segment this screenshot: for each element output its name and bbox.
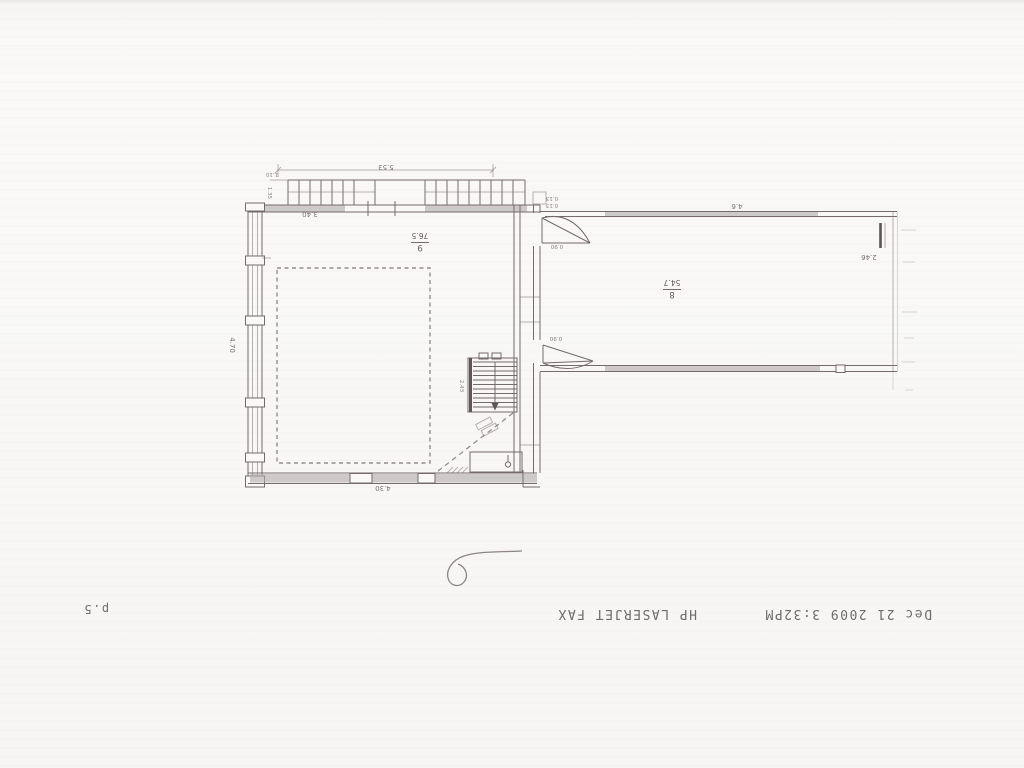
balcony-railing [270,180,525,205]
room9-left-window-wall: 4.70 [228,203,271,487]
sink-fixture [447,452,522,473]
dim-wall-thickness-a: 0.13 [545,195,558,201]
fax-device-name: HP LASERJET FAX [552,606,702,621]
door-swing-bottom: 0.90 [543,335,593,369]
room8-area: 54.7 [663,278,680,287]
dim-room8-top: 4.6 [731,202,743,210]
room8-label: 8 54.7 [663,278,681,299]
room9-label: 9 76.5 [411,231,429,252]
dim-left-wall: 4.70 [228,337,236,353]
scan-artifacts [901,230,917,390]
dim-balcony-d1: 1.10 [265,171,278,177]
room8-window [881,223,886,248]
dim-balcony-width: 5.53 [378,163,394,171]
handwritten-mark [448,551,522,585]
staircase: 2.43 [458,353,517,437]
dimension-line-balcony: 5.53 1.10 1.35 [265,163,496,200]
dim-room8-right: 2.46 [861,253,877,261]
dim-top-wall: 3.40 [302,210,318,218]
understair-dashed-line [438,413,513,471]
interior-partition-wall: 0.13 0.13 [514,192,558,473]
fax-page: 5.53 1.10 1.35 3.4 [0,0,1024,768]
room9-area: 76.5 [411,231,428,240]
dim-balcony-d2: 1.35 [266,187,272,200]
room9-number: 9 [417,242,422,252]
dim-bottom-wall: 4.30 [375,484,391,492]
room9-ceiling-dashed-outline [277,268,430,463]
fax-page-number: p.5 [76,602,116,616]
dim-door-bottom: 0.90 [549,335,562,341]
hatch-patch [447,467,468,473]
room9-top-wall: 3.40 [248,201,540,218]
room8-walls: 4.6 2.46 [540,202,898,390]
dim-wall-thickness-b: 0.13 [545,202,558,208]
room9-bottom-wall: 4.30 [248,470,540,492]
floor-plan-drawing: 5.53 1.10 1.35 3.4 [0,0,1024,768]
stairs-direction-arrow [492,362,499,411]
fax-timestamp: Dec 21 2009 3:32PM [757,606,939,621]
door-swing-top: 0.90 [542,216,590,249]
dim-door-top: 0.90 [550,243,563,249]
dim-stairs: 2.43 [458,380,464,393]
room8-number: 8 [669,289,674,299]
